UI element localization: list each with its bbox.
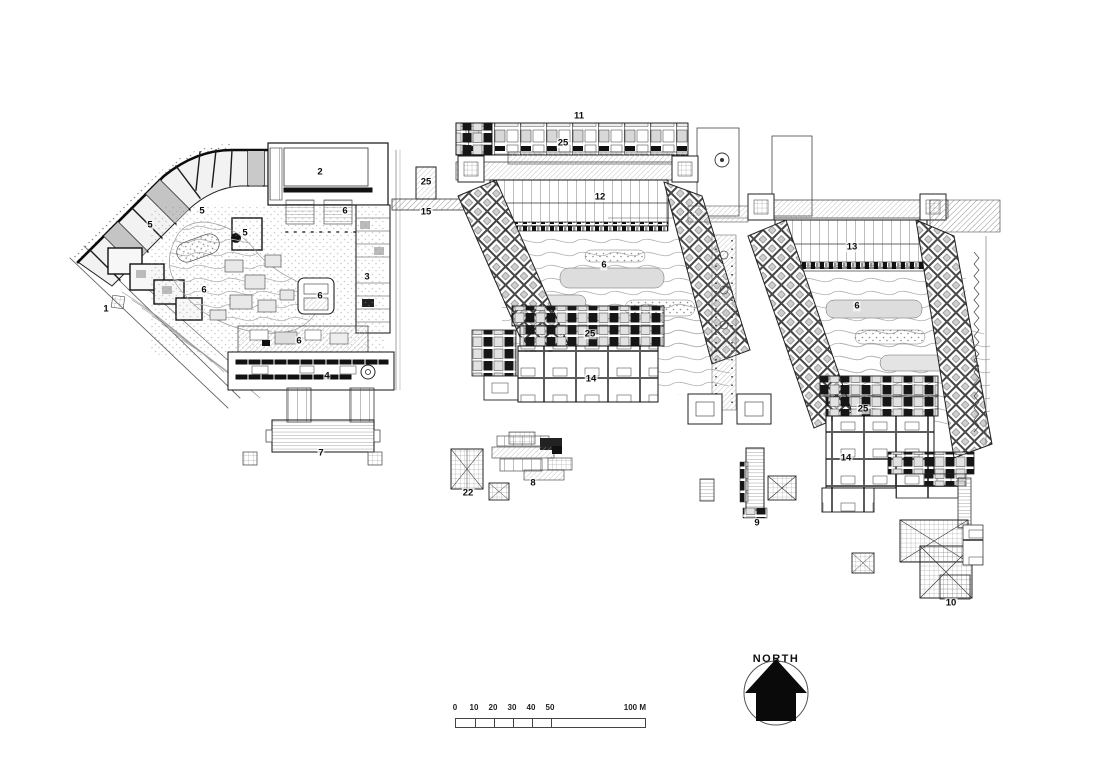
scale-bar-divider [551, 719, 552, 727]
scale-bar-track [455, 718, 646, 728]
scale-tick-label: 20 [489, 703, 498, 712]
pavilion-10 [852, 520, 983, 599]
courtyard-building-west [456, 156, 750, 402]
site-plan-drawing [0, 0, 1100, 777]
scale-bar-divider [494, 719, 495, 727]
scale-tick-labels: 01020304050 [455, 703, 646, 713]
bridge-link [392, 167, 466, 210]
scale-tick-label: 30 [508, 703, 517, 712]
scale-bar: 01020304050 100 M [455, 703, 646, 729]
scale-tick-label: 50 [546, 703, 555, 712]
scale-end-label: 100 M [624, 703, 646, 712]
site-plan-page: 1234555666666789101112131414152225252525… [0, 0, 1100, 777]
left-complex-arrival [70, 143, 400, 465]
scale-bar-divider [532, 719, 533, 727]
scale-tick-label: 40 [527, 703, 536, 712]
scale-bar-divider [475, 719, 476, 727]
north-arrow: NORTH [740, 653, 812, 665]
scale-bar-divider [513, 719, 514, 727]
cluster-8 [492, 432, 572, 480]
north-arrow-icon [740, 653, 812, 727]
scale-tick-label: 10 [470, 703, 479, 712]
scale-tick-label: 0 [453, 703, 457, 712]
